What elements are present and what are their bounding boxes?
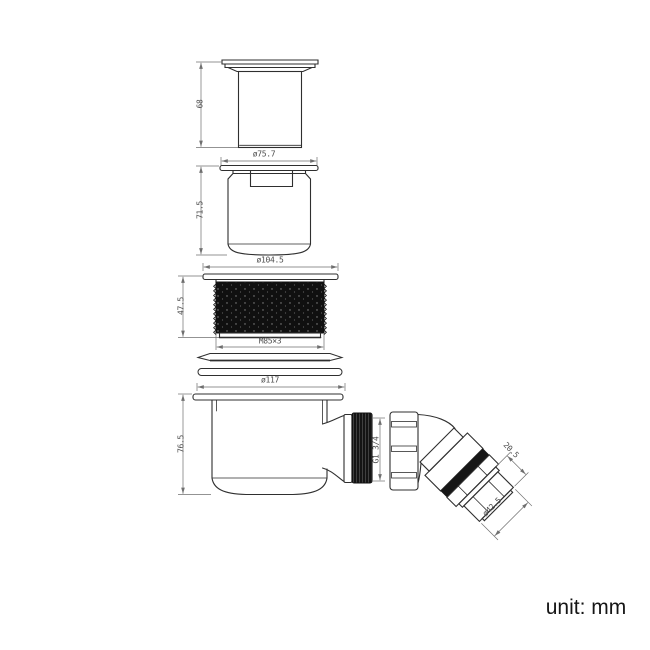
dim-label-locknut-height: 47.5 [177,297,186,315]
outlet-knurled-nut [352,413,372,483]
insert-view [220,166,318,256]
dim-label-insert-height: 71.5 [196,201,205,219]
elbow-oring-seal [441,449,490,498]
shower-trap-technical-drawing: 68 ø75.7 71.5 ø104.5 47.5 M85×3 ø117 76.… [0,0,650,650]
unit-note: unit: mm [546,596,627,620]
dim-label-cap-height: 68 [196,99,205,108]
drawing-canvas [0,0,650,650]
insert-dimension-lines [196,157,338,271]
dim-label-locknut-thread: M85×3 [259,337,282,346]
dim-label-outlet-thread: G1 3/4 [372,436,381,463]
gasket-bottom [198,369,342,376]
dim-label-trap-flange-diameter: ø117 [261,376,279,385]
elbow-view [390,412,548,544]
cap-view [222,60,318,148]
gasket-top [198,354,342,361]
trap-body-view [193,394,372,495]
dim-label-trap-height: 76.5 [177,435,186,453]
locknut-view [203,274,338,338]
dim-label-insert-flange-diameter: ø75.7 [253,150,276,159]
dim-label-locknut-flange-diameter: ø104.5 [256,256,283,265]
